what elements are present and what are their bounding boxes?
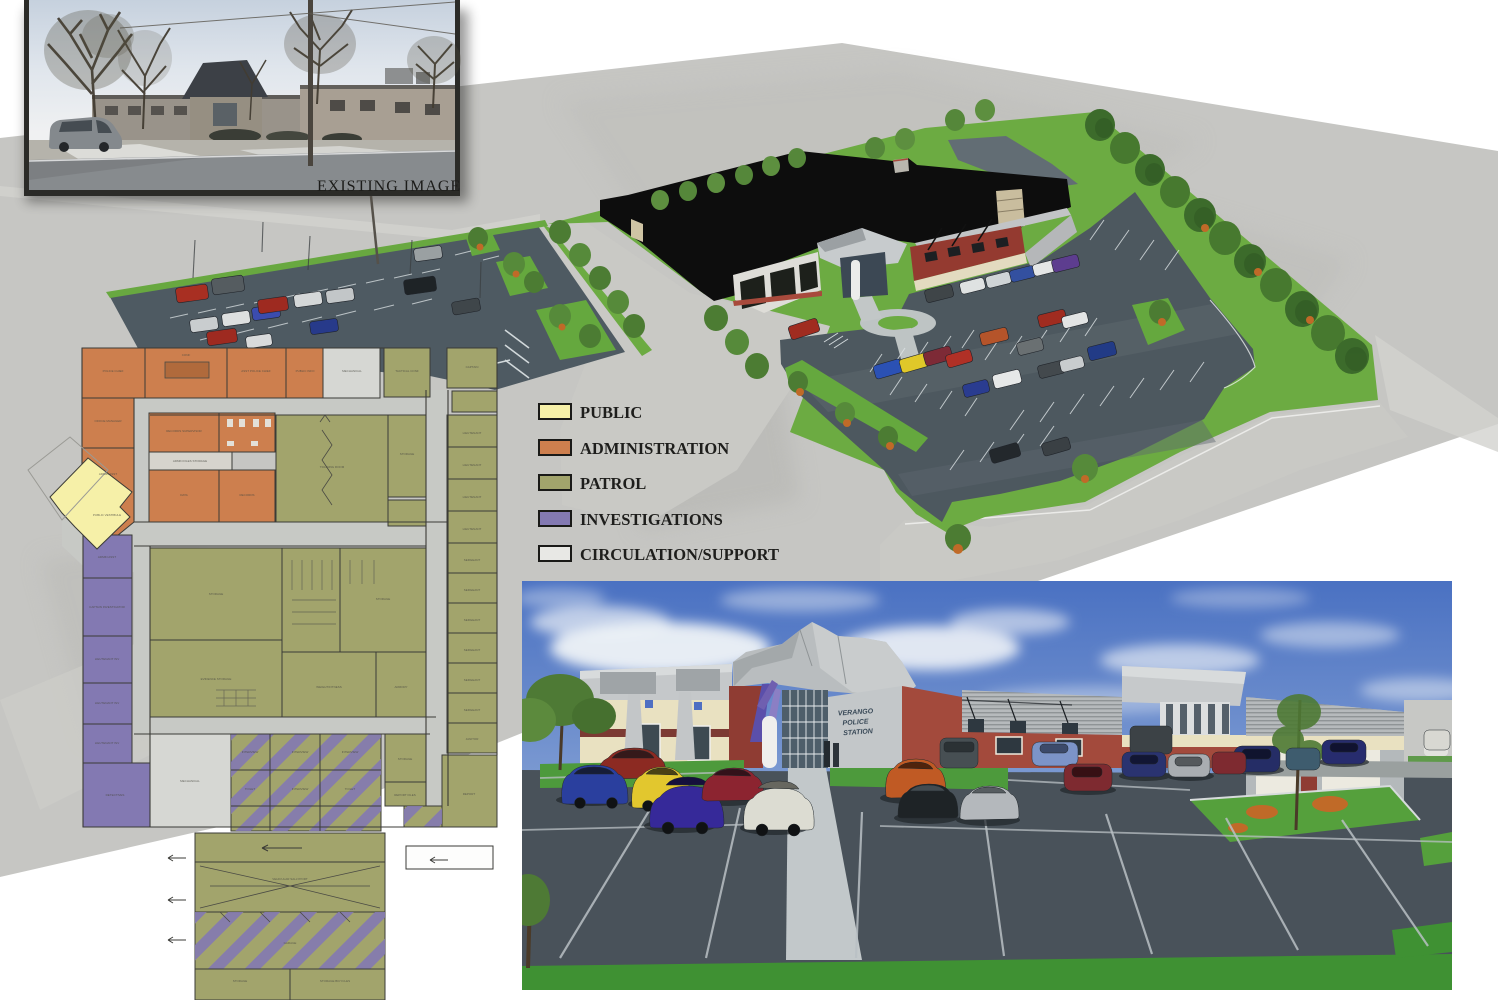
svg-text:STORAGE: STORAGE: [376, 597, 391, 601]
svg-text:CIRCULATION/SUPPORT: CIRCULATION/SUPPORT: [580, 545, 779, 564]
svg-text:SERGEANT: SERGEANT: [464, 558, 481, 562]
svg-text:PATROL: PATROL: [580, 474, 646, 493]
svg-text:MECHANICAL: MECHANICAL: [342, 369, 362, 373]
svg-text:EXISTING IMAGE: EXISTING IMAGE: [317, 178, 461, 195]
svg-text:INTERVIEW: INTERVIEW: [342, 750, 359, 754]
svg-text:STORAGE: STORAGE: [400, 452, 415, 456]
svg-text:SERGEANT: SERGEANT: [464, 708, 481, 712]
svg-text:JANITOR: JANITOR: [466, 737, 480, 741]
svg-text:RECORDS SUPERVISOR: RECORDS SUPERVISOR: [166, 429, 202, 433]
svg-text:TRAINING ROOM: TRAINING ROOM: [320, 465, 345, 469]
svg-text:INTERVIEW: INTERVIEW: [292, 787, 309, 791]
svg-text:TOILET: TOILET: [345, 787, 356, 791]
svg-text:STORAGE: STORAGE: [209, 592, 224, 596]
svg-text:ADMINISTRATION: ADMINISTRATION: [580, 439, 729, 458]
svg-text:SERGEANT: SERGEANT: [464, 588, 481, 592]
svg-text:LIEUTENANT: LIEUTENANT: [463, 431, 482, 435]
svg-text:MECHANICAL: MECHANICAL: [180, 779, 200, 783]
svg-text:DATA: DATA: [180, 493, 188, 497]
svg-text:SERGEANT: SERGEANT: [464, 678, 481, 682]
svg-text:DETECTIVES: DETECTIVES: [106, 793, 125, 797]
svg-text:PUBLIC INFO: PUBLIC INFO: [296, 369, 316, 373]
svg-text:ARMORY: ARMORY: [394, 685, 407, 689]
svg-text:LIEUTENANT INV: LIEUTENANT INV: [95, 657, 119, 661]
svg-text:WEIGHT/FITNESS: WEIGHT/FITNESS: [316, 685, 342, 689]
svg-text:STORAGE: STORAGE: [233, 979, 248, 983]
svg-text:PUBLIC: PUBLIC: [580, 403, 642, 422]
svg-text:TACTICAL CONF: TACTICAL CONF: [395, 369, 419, 373]
svg-text:ADMIN FILES STORAGE: ADMIN FILES STORAGE: [173, 459, 207, 463]
svg-text:EVIDENCE STORAGE: EVIDENCE STORAGE: [201, 677, 232, 681]
svg-text:GARAGE: GARAGE: [284, 941, 297, 945]
svg-text:LIEUTENANT INV: LIEUTENANT INV: [95, 741, 119, 745]
svg-text:OFFICE MANAGER: OFFICE MANAGER: [94, 419, 122, 423]
svg-text:ADMIN ASST: ADMIN ASST: [99, 472, 117, 476]
svg-text:CONF: CONF: [182, 353, 191, 357]
svg-text:ASST POLICE CHIEF: ASST POLICE CHIEF: [241, 369, 271, 373]
svg-text:LIEUTENANT: LIEUTENANT: [463, 463, 482, 467]
svg-text:REPORT: REPORT: [463, 792, 476, 796]
svg-text:ADMIN ASST: ADMIN ASST: [98, 555, 116, 559]
svg-text:CAPTAIN: CAPTAIN: [466, 365, 479, 369]
svg-text:PUBLIC VESTIBULE: PUBLIC VESTIBULE: [93, 513, 121, 517]
svg-text:POLICE CHIEF: POLICE CHIEF: [103, 369, 124, 373]
svg-text:CAPTAIN INVESTIGATOR: CAPTAIN INVESTIGATOR: [89, 605, 126, 609]
svg-text:STORAGE: STORAGE: [398, 757, 413, 761]
svg-text:LIEUTENANT: LIEUTENANT: [463, 495, 482, 499]
svg-text:INVESTIGATIONS: INVESTIGATIONS: [580, 510, 723, 529]
svg-text:VEHICULAR SALLYPORT: VEHICULAR SALLYPORT: [272, 877, 308, 881]
svg-text:TOILET: TOILET: [245, 787, 256, 791]
svg-text:SERGEANT: SERGEANT: [464, 618, 481, 622]
svg-text:LIEUTENANT INV: LIEUTENANT INV: [95, 701, 119, 705]
svg-text:SERGEANT: SERGEANT: [464, 648, 481, 652]
svg-text:RECORDS: RECORDS: [239, 493, 254, 497]
svg-text:REPORT FILES: REPORT FILES: [394, 793, 416, 797]
svg-text:INTERVIEW: INTERVIEW: [292, 750, 309, 754]
svg-text:INTERVIEW: INTERVIEW: [242, 750, 259, 754]
svg-text:STORAGE BICYCLES: STORAGE BICYCLES: [320, 979, 350, 983]
svg-text:LIEUTENANT: LIEUTENANT: [463, 527, 482, 531]
